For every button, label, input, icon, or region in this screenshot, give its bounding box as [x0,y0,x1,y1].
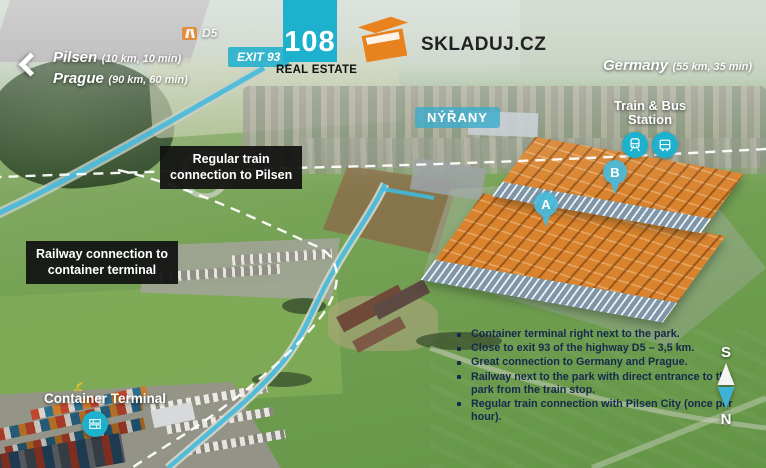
label-line: Regular train [170,151,292,167]
bus-icon-badge [652,132,678,158]
container-icon [88,417,102,431]
train-icon [628,138,642,152]
direction-city: Germany [603,57,668,74]
direction-city: Prague [53,70,104,87]
compass-south-label: S [705,345,747,360]
feature-item: Container terminal right next to the par… [452,328,752,341]
park-entrance-spur-line [383,189,434,198]
compass: S N [705,345,747,427]
compass-needle-icon [715,363,737,409]
d5-label: D5 [202,26,217,40]
container-icon-badge [82,411,108,437]
aerial-map-poster: Pilsen (10 km, 10 min) Prague (90 km, 60… [0,0,766,468]
d5-highway-icon [182,27,197,40]
logo-skladuj: SKLADUJ.CZ [352,12,546,64]
skladuj-wordmark: SKLADUJ.CZ [421,34,546,56]
compass-north-label: N [705,412,747,427]
label-line: container terminal [36,262,168,278]
logo-108-box: 108 [283,0,337,62]
container-terminal-label: Container Terminal [44,391,166,406]
town-label-nyrany: NÝŘANY [415,107,500,128]
regular-train-label: Regular train connection to Pilsen [160,146,302,189]
direction-city: Pilsen [53,49,97,66]
direction-west: Pilsen (10 km, 10 min) Prague (90 km, 60… [22,48,188,90]
direction-detail: (55 km, 35 min) [673,61,752,73]
direction-detail: (10 km, 10 min) [102,53,181,65]
label-line: connection to Pilsen [170,167,292,183]
chevron-right-icon [762,55,766,79]
label-line: Railway connection to [36,246,168,262]
direction-east: Germany (55 km, 35 min) [603,56,766,77]
direction-detail: (90 km, 60 min) [108,74,187,86]
access-road [168,184,385,468]
station-label-line2: Station [596,113,704,127]
railway-connection-label: Railway connection to container terminal [26,241,178,284]
building-b-pin: B [603,160,627,184]
logo-108-subtitle: REAL ESTATE [276,64,344,76]
train-icon-badge [622,132,648,158]
access-route-line [168,184,385,468]
logo-108-number: 108 [284,28,335,62]
bus-icon [658,138,672,152]
d5-highway-sign: D5 [182,26,217,40]
skladuj-box-icon [352,12,414,64]
building-a-pin: A [534,192,558,216]
chevron-left-icon [18,52,42,76]
train-bus-station: Train & Bus Station [596,99,704,158]
logo-108-real-estate: 108 REAL ESTATE [276,0,344,76]
highway-route-line [0,68,264,216]
